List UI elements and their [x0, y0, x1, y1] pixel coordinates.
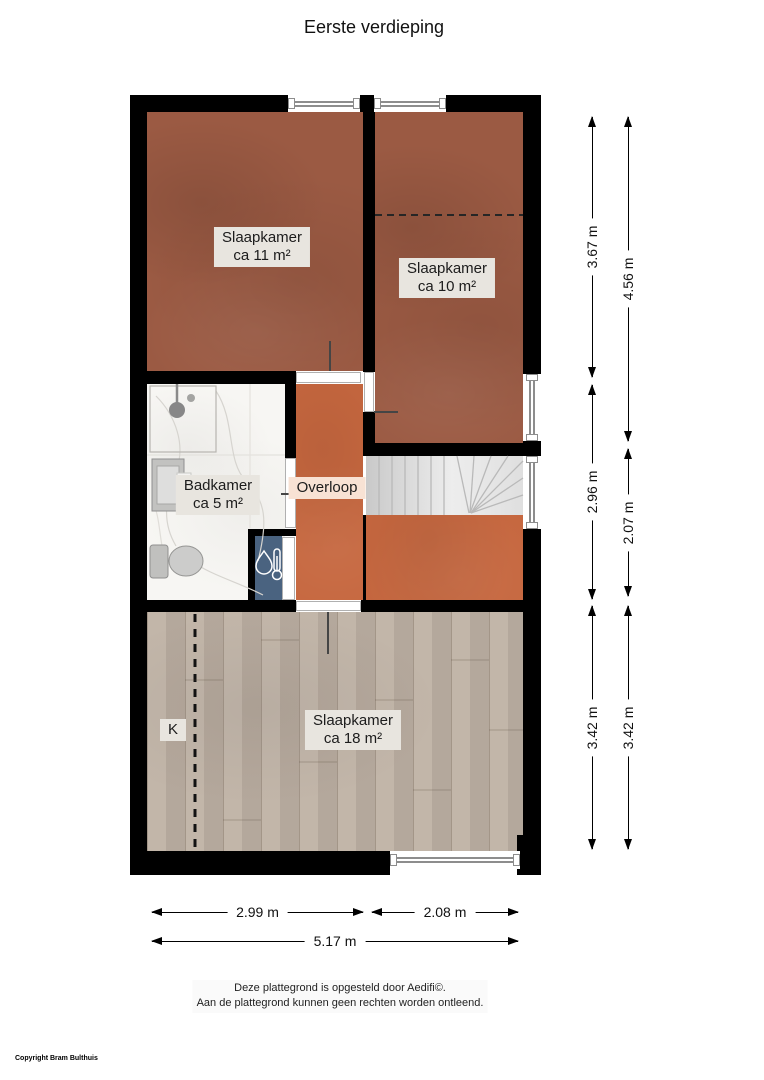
arrow-left-icon [151, 908, 162, 916]
window-glazing [529, 461, 535, 524]
room-label-slaapkamer-10: Slaapkamer ca 10 m² [399, 258, 495, 298]
room-label-overloop: Overloop [289, 477, 366, 499]
wall-segment [523, 529, 541, 875]
arrow-right-icon [353, 908, 364, 916]
arrow-down-icon [588, 589, 596, 600]
room-label-closet: K [160, 719, 186, 741]
window-frame-cap [526, 456, 538, 463]
arrow-up-icon [588, 116, 596, 127]
dimension-label: 2.99 m [227, 904, 288, 920]
arrow-up-icon [624, 448, 632, 459]
window-frame-cap [353, 98, 360, 109]
wall-segment [363, 112, 375, 372]
disclaimer-line-1: Deze plattegrond is opgesteld door Aedif… [197, 981, 484, 996]
dimension-label: 2.96 m [584, 464, 600, 521]
dimension-label: 3.42 m [620, 699, 636, 756]
window-frame-cap [288, 98, 295, 109]
room-area: ca 5 m² [184, 495, 252, 513]
room-area: ca 10 m² [407, 278, 487, 296]
window-glazing [293, 101, 355, 107]
window [374, 95, 446, 112]
room-name: Overloop [297, 479, 358, 497]
page-title: Eerste verdieping [304, 17, 444, 38]
window [523, 456, 541, 529]
floor-plan-page: Eerste verdieping [0, 0, 764, 1080]
window [288, 95, 360, 112]
arrow-right-icon [508, 908, 519, 916]
door-opening-slaapkamer-11 [296, 372, 361, 383]
room-name: Slaapkamer [313, 712, 393, 730]
wall-segment [130, 600, 296, 612]
disclaimer-line-2: Aan de plattegrond kunnen geen rechten w… [197, 996, 484, 1011]
window [523, 374, 541, 441]
wall-segment [517, 835, 541, 875]
wall-segment [360, 95, 374, 112]
copyright-text: Copyright Bram Bulthuis [15, 1055, 98, 1062]
dimension-label: 2.07 m [620, 494, 636, 551]
arrow-right-icon [508, 937, 519, 945]
room-floor-overloop-landing [366, 515, 523, 600]
wall-segment [361, 600, 523, 612]
arrow-up-icon [624, 116, 632, 127]
wall-segment [285, 384, 296, 458]
wall-segment [130, 95, 147, 875]
disclaimer-text: Deze plattegrond is opgesteld door Aedif… [193, 980, 488, 1013]
room-area: ca 18 m² [313, 730, 393, 748]
door-opening-slaapkamer-18 [296, 601, 361, 611]
dimension-label: 2.08 m [415, 904, 476, 920]
wall-segment [248, 529, 255, 600]
window-frame-cap [526, 374, 538, 381]
window-frame-cap [390, 854, 397, 866]
door-opening-boiler-closet [282, 537, 295, 600]
dimension-label: 3.67 m [584, 219, 600, 276]
arrow-down-icon [588, 839, 596, 850]
dimension-label: 5.17 m [305, 933, 366, 949]
window-glazing [395, 857, 515, 863]
room-label-badkamer: Badkamer ca 5 m² [176, 475, 260, 515]
window-frame-cap [526, 434, 538, 441]
room-floor-boiler-closet [255, 536, 282, 600]
arrow-left-icon [151, 937, 162, 945]
arrow-up-icon [624, 605, 632, 616]
room-name: Badkamer [184, 477, 252, 495]
arrow-down-icon [624, 431, 632, 442]
room-area: ca 11 m² [222, 247, 302, 265]
wall-segment [363, 443, 523, 456]
dimension-label: 3.42 m [584, 699, 600, 756]
arrow-up-icon [588, 605, 596, 616]
window [390, 851, 520, 869]
wall-segment [363, 515, 366, 600]
wall-segment [130, 851, 390, 875]
room-label-slaapkamer-18: Slaapkamer ca 18 m² [305, 710, 401, 750]
wall-segment [130, 95, 288, 112]
arrow-down-icon [624, 839, 632, 850]
window-frame-cap [374, 98, 381, 109]
wall-segment [523, 95, 541, 374]
wall-segment [363, 412, 375, 443]
wall-segment [248, 529, 296, 536]
room-name: Slaapkamer [407, 260, 487, 278]
arrow-left-icon [371, 908, 382, 916]
door-opening-slaapkamer-10 [364, 372, 374, 412]
arrow-down-icon [624, 586, 632, 597]
window-frame-cap [439, 98, 446, 109]
staircase [366, 456, 523, 515]
window-glazing [529, 379, 535, 436]
window-frame-cap [513, 854, 520, 866]
room-name: K [168, 721, 178, 739]
dimension-label: 4.56 m [620, 251, 636, 308]
room-name: Slaapkamer [222, 229, 302, 247]
wall-segment [523, 441, 541, 456]
window-frame-cap [526, 522, 538, 529]
window-glazing [379, 101, 441, 107]
arrow-up-icon [588, 384, 596, 395]
wall-segment [130, 371, 296, 384]
arrow-down-icon [588, 367, 596, 378]
room-label-slaapkamer-11: Slaapkamer ca 11 m² [214, 227, 310, 267]
